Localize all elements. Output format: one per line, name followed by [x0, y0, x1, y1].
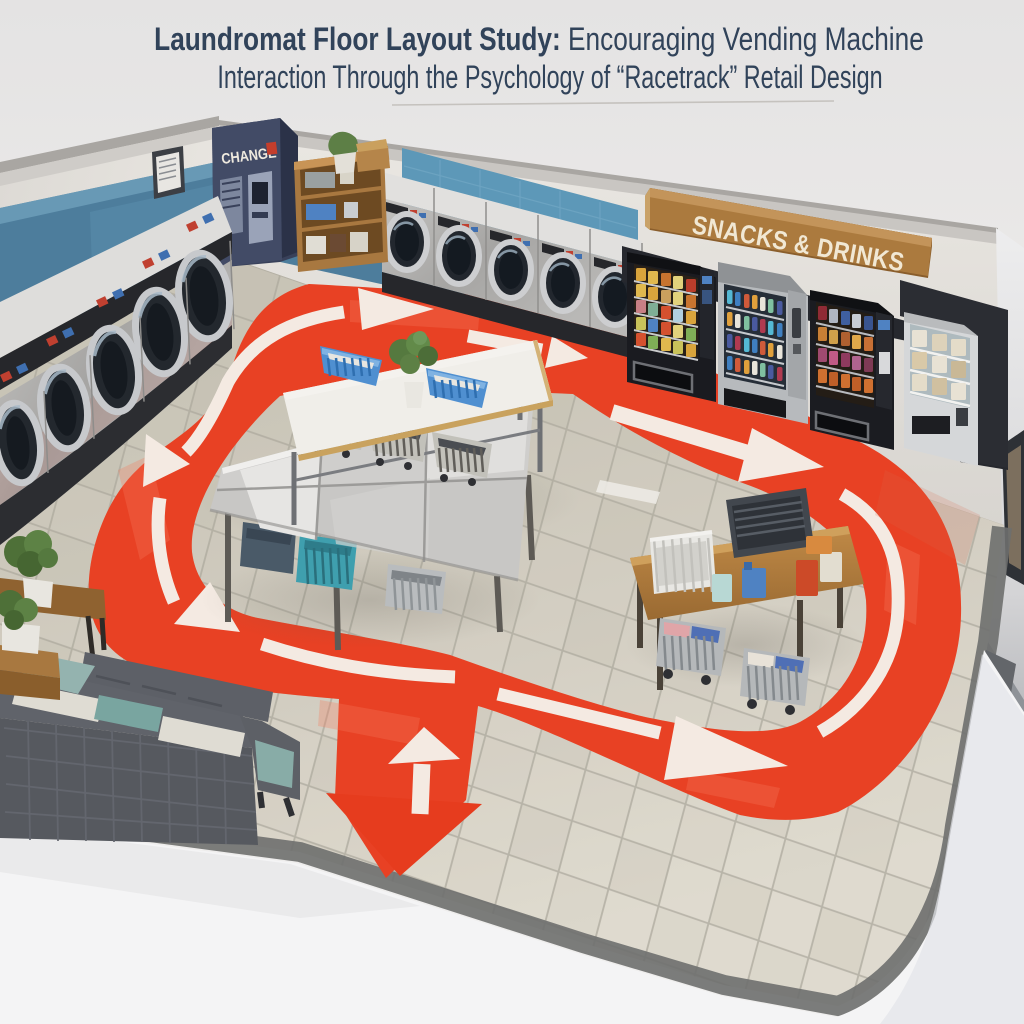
svg-text:Interaction Through the Psycho: Interaction Through the Psychology of “R… — [217, 59, 882, 94]
svg-text:Laundromat Floor Layout Study:: Laundromat Floor Layout Study: Encouragi… — [154, 23, 924, 58]
